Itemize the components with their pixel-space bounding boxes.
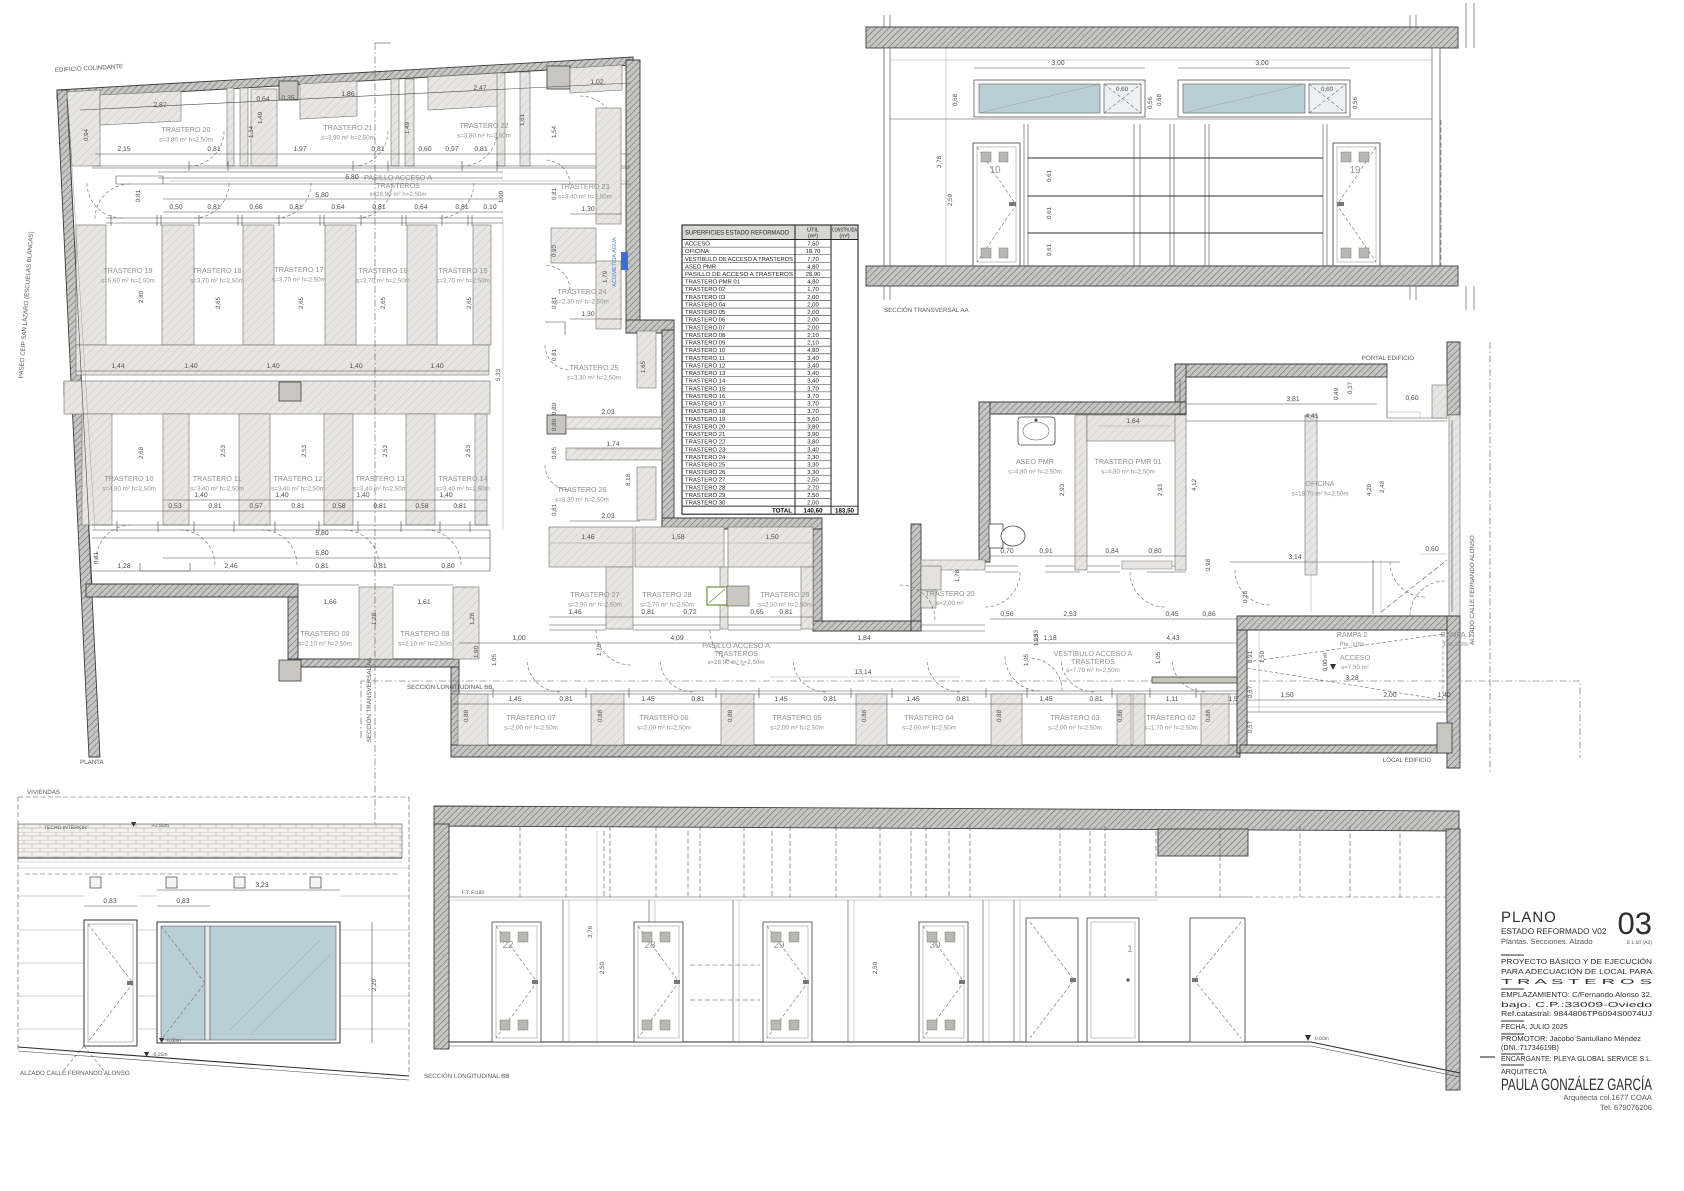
svg-text:0,98: 0,98 [1205, 558, 1212, 571]
svg-text:TRASTERO 05: TRASTERO 05 [685, 309, 726, 316]
svg-text:TRASTERO 16: TRASTERO 16 [685, 393, 726, 400]
svg-text:0,81: 0,81 [691, 696, 704, 703]
svg-text:0,81: 0,81 [551, 296, 558, 309]
svg-text:TRASTERO 07: TRASTERO 07 [685, 324, 725, 331]
svg-text:1,40: 1,40 [184, 363, 197, 370]
svg-text:SECCIÓN TRANSVERSAL AA: SECCIÓN TRANSVERSAL AA [365, 657, 373, 742]
svg-text:1,66: 1,66 [323, 599, 336, 606]
svg-text:0,61: 0,61 [1046, 243, 1053, 256]
svg-text:PAULA GONZÁLEZ GARCÍA: PAULA GONZÁLEZ GARCÍA [1501, 1075, 1652, 1094]
svg-text:VESTÍBULO DE ACCESO A TRASTERO: VESTÍBULO DE ACCESO A TRASTEROS [685, 255, 793, 263]
svg-text:s=2,10 m² h=2,50m: s=2,10 m² h=2,50m [398, 641, 452, 648]
svg-text:1,50: 1,50 [1259, 650, 1266, 663]
svg-text:TRASTEROS: TRASTEROS [1071, 657, 1115, 666]
svg-text:2,30: 2,30 [807, 454, 819, 461]
svg-text:TRASTERO 12: TRASTERO 12 [685, 362, 725, 369]
svg-text:TRASTERO 08: TRASTERO 08 [685, 332, 726, 339]
svg-text:TRASTERO 10: TRASTERO 10 [104, 474, 153, 483]
svg-text:1,40: 1,40 [266, 363, 279, 370]
svg-text:Arquitecta col.1677 COAA: Arquitecta col.1677 COAA [1563, 1093, 1653, 1102]
svg-text:TRASTERO 16: TRASTERO 16 [358, 266, 407, 275]
svg-text:3,70: 3,70 [807, 408, 819, 415]
svg-text:1,45: 1,45 [641, 696, 654, 703]
svg-text:0,88: 0,88 [861, 709, 868, 722]
svg-text:+2,80m: +2,80m [152, 823, 169, 829]
svg-text:s=3,70 m² h=2,50m: s=3,70 m² h=2,50m [356, 278, 410, 285]
svg-text:s=2,00 m² h=2,50m: s=2,00 m² h=2,50m [770, 725, 824, 732]
svg-text:TOTAL: TOTAL [772, 507, 792, 514]
svg-text:ARQUITECTA: ARQUITECTA [1501, 1067, 1547, 1076]
svg-text:2,00: 2,00 [807, 301, 819, 308]
svg-text:0,35: 0,35 [281, 95, 294, 102]
svg-text:TRASTERO 07: TRASTERO 07 [506, 713, 555, 722]
svg-text:s=3,40 m² h=2,50m: s=3,40 m² h=2,50m [558, 194, 612, 201]
svg-text:0,56: 0,56 [1000, 611, 1013, 618]
svg-text:5,80: 5,80 [315, 192, 328, 199]
svg-text:2,00: 2,00 [1383, 692, 1396, 699]
svg-text:TRASTERO PMR 01: TRASTERO PMR 01 [685, 279, 740, 286]
svg-text:TRASTERO 19: TRASTERO 19 [103, 266, 152, 275]
svg-text:2,50: 2,50 [807, 492, 819, 499]
svg-text:2,80: 2,80 [138, 290, 145, 303]
svg-text:1,30: 1,30 [581, 206, 594, 213]
svg-text:1,00: 1,00 [512, 635, 525, 642]
svg-text:SUPERFICIES ESTADO REFORMADO: SUPERFICIES ESTADO REFORMADO [685, 230, 789, 237]
svg-text:0,81: 0,81 [455, 204, 468, 211]
svg-text:1,93: 1,93 [1033, 629, 1040, 642]
svg-text:TRASTERO 13: TRASTERO 13 [355, 474, 404, 483]
svg-text:1,44: 1,44 [111, 363, 124, 370]
svg-text:PROYECTO BÁSICO Y DE EJECUCIÓN: PROYECTO BÁSICO Y DE EJECUCIÓN [1501, 957, 1652, 966]
svg-text:bajo. C.P.:33009-Oviedo: bajo. C.P.:33009-Oviedo [1501, 1000, 1652, 1009]
svg-text:RAMPA 2: RAMPA 2 [1337, 630, 1368, 639]
svg-text:2,53: 2,53 [301, 444, 308, 457]
svg-text:TRASTERO 18: TRASTERO 18 [685, 408, 726, 415]
svg-text:FECHA: JULIO 2025: FECHA: JULIO 2025 [1501, 1022, 1568, 1031]
svg-text:s=2,30 m² h=2,50m: s=2,30 m² h=2,50m [555, 299, 609, 306]
svg-text:Pte.:10%: Pte.:10% [1339, 641, 1365, 648]
svg-text:2,65: 2,65 [215, 296, 222, 309]
svg-text:3,80: 3,80 [807, 423, 819, 430]
svg-text:1,45: 1,45 [774, 696, 787, 703]
svg-text:2,65: 2,65 [380, 296, 387, 309]
svg-text:1,49: 1,49 [404, 121, 411, 134]
svg-text:1,50: 1,50 [1280, 692, 1293, 699]
svg-text:ALZADO CALLE FERNANDO ALONSO: ALZADO CALLE FERNANDO ALONSO [20, 1070, 130, 1077]
svg-text:2,53: 2,53 [1063, 611, 1076, 618]
svg-text:TRASTERO 20: TRASTERO 20 [161, 125, 210, 134]
svg-text:TRASTERO 22: TRASTERO 22 [685, 439, 725, 446]
svg-text:3,78: 3,78 [936, 155, 943, 168]
svg-text:1,79: 1,79 [602, 270, 609, 283]
svg-text:0,56: 0,56 [1147, 96, 1154, 109]
svg-text:TRASTERO 02: TRASTERO 02 [1146, 713, 1195, 722]
svg-text:Plantas. Secciones. Alzado: Plantas. Secciones. Alzado [1501, 937, 1593, 946]
svg-text:1,45: 1,45 [1039, 696, 1052, 703]
svg-text:TRASTERO 15: TRASTERO 15 [438, 266, 487, 275]
svg-text:PLANTA: PLANTA [80, 759, 104, 766]
svg-text:140,60: 140,60 [804, 507, 823, 514]
svg-text:Pte.:25%: Pte.:25% [1443, 641, 1469, 648]
svg-text:0,58: 0,58 [332, 503, 345, 510]
svg-text:OFICINA: OFICINA [1305, 479, 1334, 488]
svg-text:SECCIÓN LONGITUDINAL BB: SECCIÓN LONGITUDINAL BB [424, 1072, 509, 1080]
svg-text:TRASTERO 12: TRASTERO 12 [273, 474, 322, 483]
svg-text:2,93: 2,93 [1157, 483, 1164, 496]
svg-text:3,40: 3,40 [807, 355, 819, 362]
svg-text:1,40: 1,40 [194, 492, 207, 499]
svg-text:1,58: 1,58 [671, 534, 684, 541]
svg-text:PLANO: PLANO [1501, 909, 1557, 926]
svg-text:0,68: 0,68 [1156, 93, 1163, 106]
svg-text:0,70: 0,70 [1000, 548, 1013, 555]
svg-text:0,53: 0,53 [168, 503, 181, 510]
svg-text:1,40: 1,40 [430, 363, 443, 370]
svg-text:1,18: 1,18 [1043, 635, 1056, 642]
svg-text:1,78: 1,78 [954, 569, 961, 582]
svg-text:2,00: 2,00 [807, 294, 819, 301]
svg-text:0,81: 0,81 [641, 609, 654, 616]
svg-text:2,10: 2,10 [807, 332, 819, 339]
svg-text:3,40: 3,40 [807, 378, 819, 385]
svg-text:0,97: 0,97 [445, 146, 458, 153]
svg-text:0,57: 0,57 [1247, 720, 1254, 733]
svg-text:TRASTERO 06: TRASTERO 06 [685, 317, 726, 324]
svg-text:2,50: 2,50 [599, 961, 606, 974]
svg-text:3,28: 3,28 [1345, 675, 1358, 682]
svg-text:TRASTERO 19: TRASTERO 19 [685, 416, 725, 423]
svg-text:ASEO PMR: ASEO PMR [685, 263, 716, 270]
svg-text:1,65: 1,65 [640, 360, 647, 373]
svg-text:7,70: 7,70 [807, 256, 819, 263]
svg-text:2,50: 2,50 [872, 961, 879, 974]
svg-text:0,60: 0,60 [1116, 86, 1129, 93]
svg-text:2,87: 2,87 [153, 102, 166, 109]
svg-text:s=2,00 m² h=2,50m: s=2,00 m² h=2,50m [504, 725, 558, 732]
svg-text:PROMOTOR: Jacobo Santullano Mé: PROMOTOR: Jacobo Santullano Méndez [1501, 1034, 1641, 1043]
svg-text:TRASTERO PMR 01: TRASTERO PMR 01 [1094, 457, 1161, 466]
svg-text:PASEO CEIP SAN LÁZARO (ESCUELA: PASEO CEIP SAN LÁZARO (ESCUELAS BLANCAS) [17, 231, 35, 378]
svg-text:1,00: 1,00 [498, 190, 505, 203]
svg-text:30: 30 [929, 940, 941, 951]
svg-text:TRASTERO 20: TRASTERO 20 [685, 423, 726, 430]
svg-text:28,90: 28,90 [806, 271, 821, 278]
svg-text:2,48: 2,48 [1379, 480, 1386, 493]
svg-text:0,80: 0,80 [1148, 548, 1161, 555]
svg-text:3,14: 3,14 [1288, 554, 1301, 561]
svg-text:0,81: 0,81 [208, 503, 221, 510]
svg-text:ACCESO: ACCESO [1340, 653, 1371, 662]
svg-text:2,70: 2,70 [807, 484, 819, 491]
svg-text:TRASTERO 23: TRASTERO 23 [560, 182, 609, 191]
svg-text:4,80: 4,80 [807, 347, 819, 354]
svg-text:SECCIÓN LONGITUDINAL BB: SECCIÓN LONGITUDINAL BB [407, 683, 492, 691]
svg-text:0,94: 0,94 [83, 128, 90, 141]
svg-text:1,05: 1,05 [1155, 651, 1162, 664]
svg-text:s=28,90 m² h=2,50m: s=28,90 m² h=2,50m [707, 659, 764, 666]
svg-text:18,70: 18,70 [806, 248, 821, 255]
svg-text:1,40: 1,40 [439, 492, 452, 499]
svg-text:s=7,50 m²: s=7,50 m² [1341, 664, 1369, 671]
svg-text:1,40: 1,40 [275, 492, 288, 499]
svg-text:TRASTERO 25: TRASTERO 25 [685, 462, 726, 469]
svg-text:0,10: 0,10 [483, 204, 496, 211]
svg-text:1,40: 1,40 [1437, 692, 1450, 699]
svg-text:0,81: 0,81 [956, 696, 969, 703]
svg-text:Tel. 679076206: Tel. 679076206 [1600, 1103, 1652, 1112]
svg-text:0,00m: 0,00m [1315, 1036, 1329, 1042]
svg-text:s=3,70 m² h=2,50m: s=3,70 m² h=2,50m [436, 278, 490, 285]
svg-text:1,64: 1,64 [1126, 418, 1139, 425]
svg-text:0,81: 0,81 [551, 348, 558, 361]
svg-text:2,03: 2,03 [601, 409, 614, 416]
svg-text:3,40: 3,40 [807, 446, 819, 453]
svg-text:0,81: 0,81 [207, 204, 220, 211]
svg-text:0,61: 0,61 [1046, 206, 1053, 219]
svg-text:ACCESO: ACCESO [685, 241, 710, 248]
svg-text:PORTAL EDIFICIO: PORTAL EDIFICIO [1362, 355, 1415, 362]
svg-text:0,80: 0,80 [551, 402, 558, 415]
svg-text:TRASTERO 09: TRASTERO 09 [685, 340, 725, 347]
svg-text:0,65: 0,65 [551, 446, 558, 459]
svg-text:1,02: 1,02 [590, 79, 603, 86]
svg-text:0,88: 0,88 [727, 709, 734, 722]
svg-text:2,65: 2,65 [298, 296, 305, 309]
svg-text:TRASTERO 10: TRASTERO 10 [685, 347, 726, 354]
svg-text:5,80: 5,80 [315, 550, 328, 557]
svg-text:s=2,00 m² h=2,50m: s=2,00 m² h=2,50m [1048, 725, 1102, 732]
svg-text:1,45: 1,45 [906, 696, 919, 703]
svg-text:1,78: 1,78 [596, 643, 603, 656]
svg-text:5,80: 5,80 [315, 530, 328, 537]
svg-text:2,47: 2,47 [473, 85, 486, 92]
svg-text:1,34: 1,34 [248, 125, 255, 138]
svg-text:0,49: 0,49 [1333, 387, 1340, 400]
svg-text:ENCARGANTE: PLEYA GLOBAL SERVI: ENCARGANTE: PLEYA GLOBAL SERVICE S.L. [1501, 1054, 1652, 1063]
svg-text:3,80: 3,80 [807, 439, 819, 446]
svg-text:TRASTERO 04: TRASTERO 04 [685, 301, 726, 308]
svg-text:0,60: 0,60 [1425, 546, 1438, 553]
svg-text:0,64: 0,64 [331, 204, 344, 211]
svg-text:TRASTERO 23: TRASTERO 23 [685, 446, 726, 453]
svg-text:0,86: 0,86 [1202, 611, 1215, 618]
svg-text:LOCAL EDIFICIO: LOCAL EDIFICIO [1383, 757, 1432, 764]
svg-text:0,88: 0,88 [463, 709, 470, 722]
svg-text:s=2,00 m² h=2,50m: s=2,00 m² h=2,50m [902, 725, 956, 732]
svg-text:0,65: 0,65 [750, 609, 763, 616]
svg-text:8,18: 8,18 [625, 473, 632, 486]
svg-text:(m²): (m²) [808, 233, 818, 240]
svg-text:T R A S T E R O S: T R A S T E R O S [1501, 977, 1652, 986]
svg-text:2,50: 2,50 [807, 477, 819, 484]
svg-text:0,37: 0,37 [1347, 381, 1354, 394]
svg-text:1,28: 1,28 [469, 612, 476, 625]
svg-text:s=1,70 m² h=2,50m: s=1,70 m² h=2,50m [1144, 725, 1198, 732]
svg-text:TRASTERO 03: TRASTERO 03 [685, 294, 726, 301]
svg-text:3,40: 3,40 [807, 362, 819, 369]
svg-text:s=3,80 m² h=2,50m: s=3,80 m² h=2,50m [159, 137, 213, 144]
svg-text:s=2,70 m² h=2,50m: s=2,70 m² h=2,50m [640, 602, 694, 609]
svg-text:2,53: 2,53 [220, 444, 227, 457]
svg-text:3,00: 3,00 [1051, 60, 1064, 67]
svg-text:TRASTERO 03: TRASTERO 03 [1050, 713, 1099, 722]
svg-text:TRASTERO 13: TRASTERO 13 [685, 370, 726, 377]
svg-text:3,23: 3,23 [255, 882, 268, 889]
svg-text:TRASTERO 17: TRASTERO 17 [274, 265, 323, 274]
svg-text:0,61: 0,61 [1046, 169, 1053, 182]
svg-text:TRASTERO 27: TRASTERO 27 [570, 590, 619, 599]
svg-text:0,81: 0,81 [315, 563, 328, 570]
svg-text:0,80: 0,80 [551, 418, 558, 431]
svg-text:ASEO PMR: ASEO PMR [1016, 457, 1054, 466]
svg-text:TRASTERO 15: TRASTERO 15 [685, 385, 726, 392]
svg-text:1,46: 1,46 [581, 534, 594, 541]
svg-text:s=7,70 m² h=2,50m: s=7,70 m² h=2,50m [1066, 667, 1120, 674]
svg-text:0,81: 0,81 [1089, 696, 1102, 703]
svg-text:3,00: 3,00 [1255, 60, 1268, 67]
svg-text:0,84: 0,84 [1105, 548, 1118, 555]
svg-text:1,70: 1,70 [807, 286, 819, 293]
svg-text:1,61: 1,61 [519, 113, 526, 126]
svg-text:0,00m: 0,00m [167, 1038, 181, 1044]
svg-text:s=28,90 m² h=2,50m: s=28,90 m² h=2,50m [369, 191, 426, 198]
svg-text:TRASTERO 24: TRASTERO 24 [557, 287, 606, 296]
svg-text:TRASTERO 04: TRASTERO 04 [904, 713, 953, 722]
svg-text:TRASTERO 21: TRASTERO 21 [685, 431, 725, 438]
svg-text:0,67: 0,67 [1247, 685, 1254, 698]
svg-text:E 1:50 (A2): E 1:50 (A2) [1627, 940, 1653, 946]
svg-text:13,14: 13,14 [854, 669, 871, 676]
svg-text:2,10: 2,10 [807, 340, 819, 347]
svg-text:0,56: 0,56 [1352, 96, 1359, 109]
svg-text:0,80: 0,80 [441, 563, 454, 570]
svg-text:1,90: 1,90 [473, 645, 480, 658]
svg-text:TRASTERO 30: TRASTERO 30 [925, 589, 974, 598]
svg-text:PASILLO DE ACCESO A TRASTEROS: PASILLO DE ACCESO A TRASTEROS [685, 271, 793, 278]
svg-text:TRASTERO 27: TRASTERO 27 [685, 477, 725, 484]
svg-text:0,81: 0,81 [289, 204, 302, 211]
svg-text:s=4,80 m² h=2,50m: s=4,80 m² h=2,50m [1008, 469, 1062, 476]
svg-text:2,50: 2,50 [947, 193, 954, 206]
svg-text:3,30: 3,30 [807, 469, 819, 476]
svg-text:0,83: 0,83 [103, 898, 116, 905]
svg-text:ALZADO CALLE FERNANDO ALONSO: ALZADO CALLE FERNANDO ALONSO [1469, 535, 1476, 645]
svg-text:2,00: 2,00 [807, 500, 819, 507]
svg-text:0,81: 0,81 [474, 146, 487, 153]
svg-text:2,00: 2,00 [807, 317, 819, 324]
svg-text:0,57: 0,57 [249, 503, 262, 510]
svg-text:TRASTERO 26: TRASTERO 26 [685, 469, 726, 476]
svg-text:Ref.catastral: 9844806TP6094S0: Ref.catastral: 9844806TP6094S0074UJ [1501, 1009, 1652, 1018]
svg-text:2,46: 2,46 [224, 563, 237, 570]
svg-text:TRASTEROS: TRASTEROS [376, 181, 420, 190]
svg-text:03: 03 [1618, 906, 1652, 941]
svg-text:3,90: 3,90 [807, 431, 819, 438]
svg-text:2,65: 2,65 [466, 296, 473, 309]
svg-text:TECHO INTERIOR: TECHO INTERIOR [44, 825, 87, 831]
svg-text:s=3,30 m² h=2,50m: s=3,30 m² h=2,50m [567, 375, 621, 382]
svg-text:TRASTERO 28: TRASTERO 28 [685, 484, 726, 491]
svg-text:s=3,90 m² h=2,50m: s=3,90 m² h=2,50m [321, 135, 375, 142]
svg-text:TRASTEROS: TRASTEROS [714, 649, 758, 658]
svg-text:2,00: 2,00 [807, 309, 819, 316]
svg-text:1,28: 1,28 [371, 612, 378, 625]
svg-text:4,12: 4,12 [1191, 478, 1198, 491]
svg-text:7,50: 7,50 [807, 241, 819, 248]
svg-text:TRASTERO 14: TRASTERO 14 [438, 474, 487, 483]
svg-text:TRASTERO 06: TRASTERO 06 [639, 713, 688, 722]
svg-text:2,53: 2,53 [382, 444, 389, 457]
svg-text:0,88: 0,88 [597, 709, 604, 722]
svg-text:0,91: 0,91 [1039, 548, 1052, 555]
svg-text:1,40: 1,40 [349, 363, 362, 370]
svg-text:TRASTERO 17: TRASTERO 17 [685, 401, 725, 408]
svg-text:ÚTIL: ÚTIL [807, 227, 819, 234]
svg-text:2,68: 2,68 [138, 446, 145, 459]
svg-text:0,68: 0,68 [952, 93, 959, 106]
svg-text:0,60: 0,60 [1405, 395, 1418, 402]
svg-text:ACOMETIDA AGUA: ACOMETIDA AGUA [612, 237, 618, 287]
svg-text:0,81: 0,81 [373, 563, 386, 570]
svg-text:EDIFICIO COLINDANTE: EDIFICIO COLINDANTE [55, 63, 124, 74]
svg-text:0,58: 0,58 [415, 503, 428, 510]
svg-text:29: 29 [773, 940, 785, 951]
svg-text:3,70: 3,70 [807, 393, 819, 400]
svg-text:0,66: 0,66 [249, 204, 262, 211]
svg-text:1,11: 1,11 [1166, 696, 1179, 703]
svg-text:s=4,80 m² h=2,50m: s=4,80 m² h=2,50m [1101, 469, 1155, 476]
svg-text:5,33: 5,33 [495, 368, 502, 381]
svg-text:3,70: 3,70 [807, 401, 819, 408]
svg-text:183,50: 183,50 [835, 507, 854, 514]
svg-text:TRASTERO 22: TRASTERO 22 [459, 121, 508, 130]
svg-text:0,81: 0,81 [453, 503, 466, 510]
svg-text:TRASTERO 11: TRASTERO 11 [193, 474, 242, 483]
svg-text:1,86: 1,86 [341, 91, 354, 98]
svg-text:0,88: 0,88 [1117, 709, 1124, 722]
svg-text:3,40: 3,40 [807, 370, 819, 377]
svg-text:s=18,70 m² h=2,50m: s=18,70 m² h=2,50m [1291, 491, 1348, 498]
svg-text:2,15: 2,15 [117, 146, 130, 153]
svg-text:0,91: 0,91 [1247, 650, 1254, 663]
svg-text:1,97: 1,97 [293, 146, 306, 153]
svg-text:1: 1 [1127, 944, 1133, 955]
svg-text:4,41: 4,41 [1305, 413, 1318, 420]
svg-text:TRASTERO 30: TRASTERO 30 [685, 500, 726, 507]
svg-text:2,53: 2,53 [465, 444, 472, 457]
svg-text:0,81: 0,81 [551, 187, 558, 200]
svg-text:0,64: 0,64 [414, 204, 427, 211]
svg-text:TRASTERO 24: TRASTERO 24 [685, 454, 726, 461]
svg-text:0,81: 0,81 [559, 696, 572, 703]
svg-text:1,30: 1,30 [581, 311, 594, 318]
svg-text:TRASTERO 28: TRASTERO 28 [642, 590, 691, 599]
svg-text:1,61: 1,61 [417, 599, 430, 606]
svg-text:TRASTERO 14: TRASTERO 14 [685, 378, 726, 385]
svg-text:22: 22 [502, 940, 514, 951]
svg-text:4,43: 4,43 [1166, 635, 1179, 642]
svg-text:4,29: 4,29 [1366, 483, 1373, 496]
svg-text:VIVIENDAS: VIVIENDAS [27, 789, 60, 796]
svg-text:5,60: 5,60 [807, 416, 819, 423]
svg-text:EMPLAZAMIENTO: C/Fernando Alon: EMPLAZAMIENTO: C/Fernando Alonso 32, [1501, 990, 1652, 999]
svg-text:s=2,00 m² h=2,50m: s=2,00 m² h=2,50m [637, 725, 691, 732]
svg-text:1,05: 1,05 [1023, 653, 1030, 666]
svg-text:2,20: 2,20 [371, 978, 378, 991]
svg-text:TRASTERO 09: TRASTERO 09 [300, 629, 349, 638]
svg-text:(DNI.:71734619B): (DNI.:71734619B) [1501, 1043, 1559, 1052]
svg-text:3,81: 3,81 [1286, 396, 1299, 403]
